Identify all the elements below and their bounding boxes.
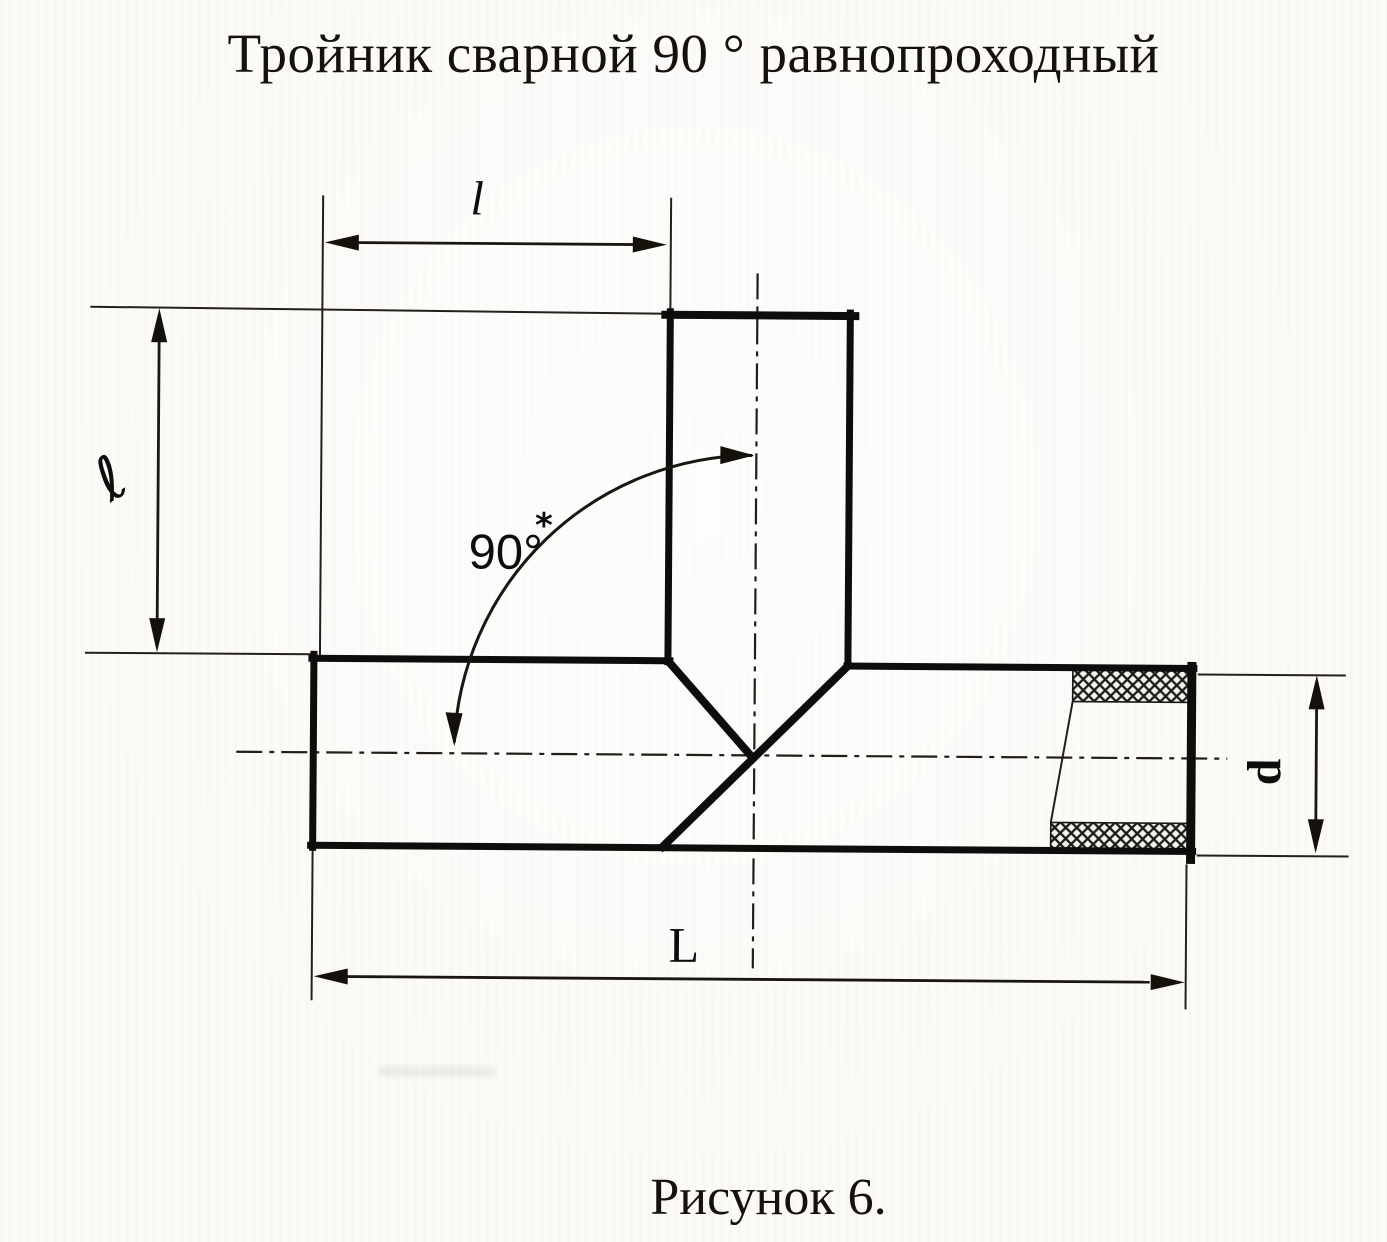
run-pipe-left-end (313, 654, 314, 847)
run-pipe-right-end (1191, 666, 1192, 859)
arrowhead-L-left (314, 968, 348, 984)
centerline-horizontal (236, 752, 1227, 759)
extension-line-L-right (1186, 864, 1187, 1009)
scanned-drawing-page: Тройник сварной 90 ° равнопроходный (0, 0, 1387, 1242)
run-pipe-top-edge-right (847, 666, 1194, 668)
weld-seam-left-chamfer (667, 661, 753, 758)
dimension-line-L (325, 976, 1150, 982)
label-branch-length-l: l (470, 172, 484, 225)
extension-line-left-vertical (320, 195, 323, 656)
arrowhead-d-bottom (1308, 819, 1324, 853)
arrowhead-L-right (1151, 974, 1185, 990)
branch-pipe-right-wall (848, 313, 850, 666)
label-branch-height-ell: ℓ (81, 443, 140, 516)
label-diameter-d: d (1238, 758, 1291, 785)
extension-line-d-bottom (1197, 855, 1349, 856)
pipe-wall-section-hatch-top (1073, 670, 1191, 703)
extension-line-upper-horizontal (90, 307, 668, 314)
extension-line-L-left (312, 849, 313, 1000)
arrowhead-arc-top (720, 446, 754, 464)
arrowhead-d-top (1309, 675, 1325, 709)
arrowhead-l-right (633, 237, 667, 253)
centerline-vertical (753, 273, 758, 968)
pipe-wall-section-hatch-bottom (1051, 822, 1190, 851)
label-angle-90: 90° (468, 525, 542, 580)
dimension-line-l (336, 242, 656, 244)
extension-line-d-top (1198, 674, 1346, 675)
scan-smudge-artifact (378, 1066, 496, 1077)
section-break-line (1051, 701, 1073, 822)
label-overall-length-L: L (668, 917, 699, 973)
dimension-line-d (1316, 687, 1317, 841)
extension-line-lower-horizontal (85, 653, 313, 655)
extension-line-branch-left-upper (670, 198, 671, 313)
arrowhead-l-left (325, 234, 359, 250)
dimension-line-ell (157, 319, 159, 641)
branch-pipe-left-wall (668, 312, 670, 662)
label-angle-footnote-asterisk: * (535, 506, 553, 546)
tee-fitting-technical-drawing: l ℓ 90° * L d (0, 0, 1387, 1242)
figure-caption: Рисунок 6. (75, 1168, 1387, 1227)
branch-pipe-top-edge (665, 315, 855, 316)
run-pipe-top-edge-left (312, 658, 670, 660)
arrowhead-ell-bottom (149, 618, 165, 652)
arrowhead-arc-bottom (445, 712, 462, 746)
arrowhead-ell-top (151, 308, 167, 342)
